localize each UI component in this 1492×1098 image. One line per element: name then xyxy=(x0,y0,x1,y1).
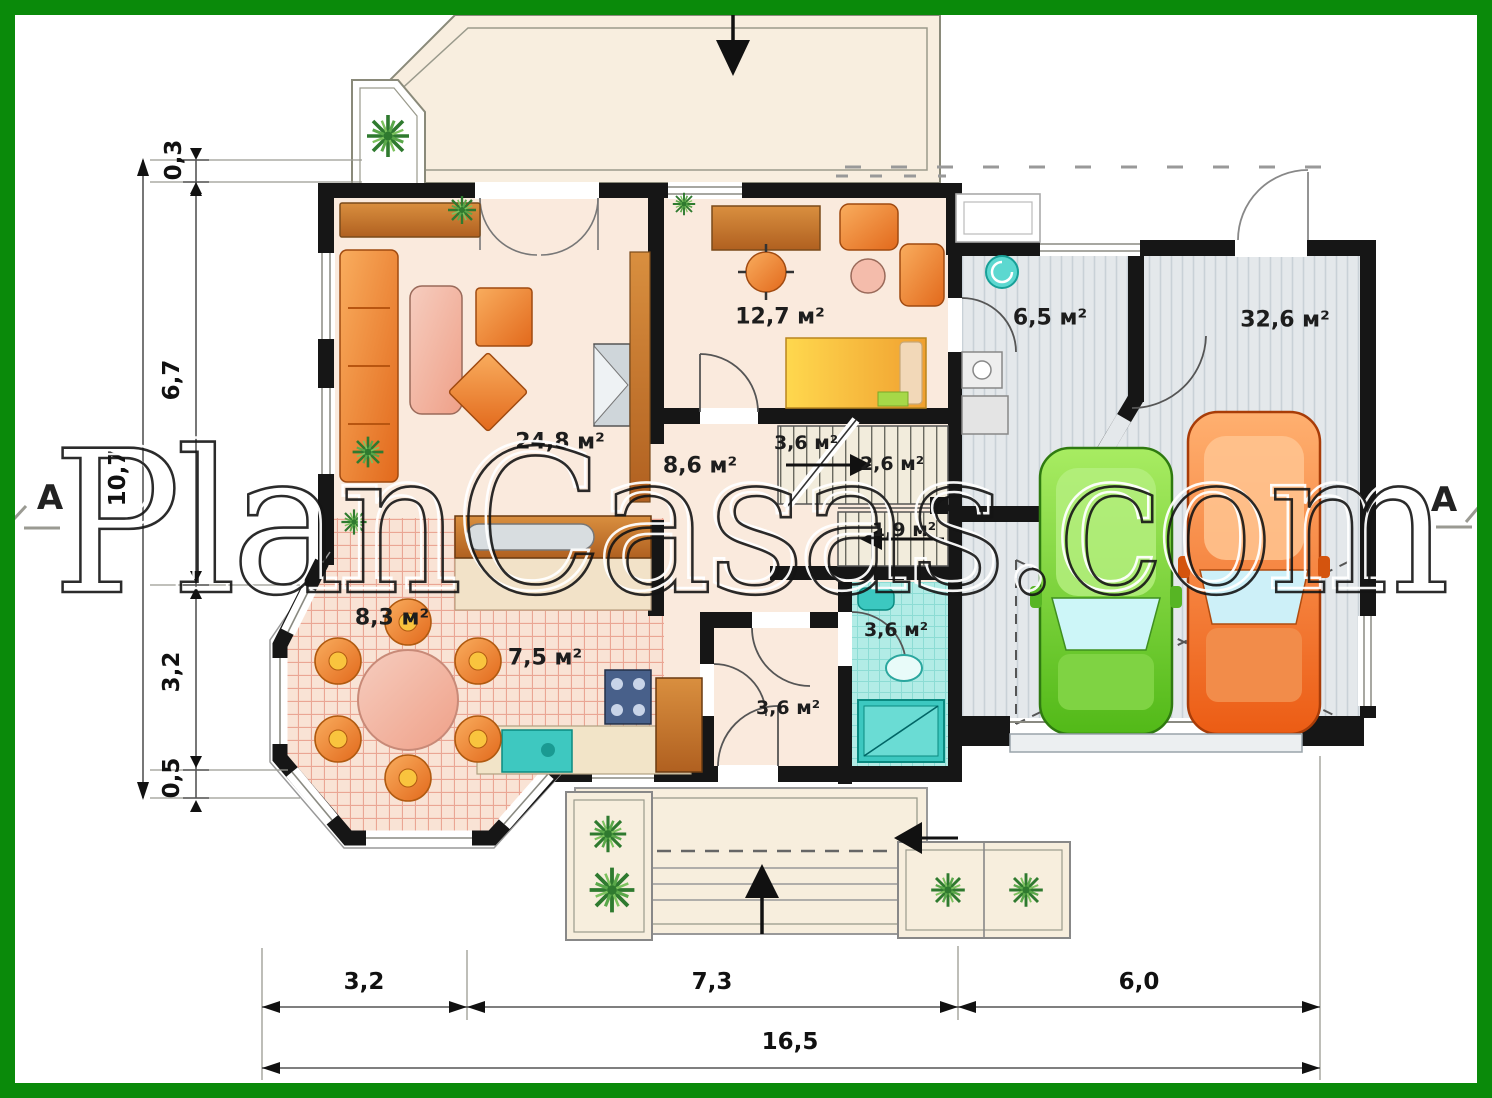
porch-planter-left xyxy=(566,792,652,940)
room-label-kitchen: 7,5 м² xyxy=(508,646,582,671)
entrance-porch xyxy=(566,788,1070,940)
dim-left-6-7: 6,7 xyxy=(159,360,185,401)
dim-bottom-7-3: 7,3 xyxy=(692,969,733,995)
dim-bottom-total: 16,5 xyxy=(762,1029,819,1055)
dim-left-0-5: 0,5 xyxy=(159,758,185,799)
washbasin xyxy=(886,655,922,681)
watermark: PlanCasas.com xyxy=(52,408,1445,639)
wardrobe xyxy=(656,678,702,772)
room-label-entry: 3,6 м² xyxy=(756,697,820,719)
room-label-garage: 32,6 м² xyxy=(1240,308,1330,333)
room-label-study: 12,7 м² xyxy=(735,305,825,330)
kitchen-sink xyxy=(502,730,572,772)
floor-plan-page: 24,8 м² 12,7 м² 8,6 м² 3,6 м² 2,6 м² 1,9… xyxy=(0,0,1492,1098)
terrace xyxy=(352,2,940,194)
dim-left-3-2: 3,2 xyxy=(159,652,185,693)
dim-bottom-3-2: 3,2 xyxy=(344,969,385,995)
room-label-utility: 6,5 м² xyxy=(1013,306,1087,331)
garage-apron xyxy=(1010,734,1302,752)
bed xyxy=(786,338,926,408)
dim-bottom-6-0: 6,0 xyxy=(1119,969,1160,995)
porch-planter-right xyxy=(898,842,1070,938)
dim-left-0-3: 0,3 xyxy=(161,140,187,181)
stove xyxy=(605,670,651,724)
